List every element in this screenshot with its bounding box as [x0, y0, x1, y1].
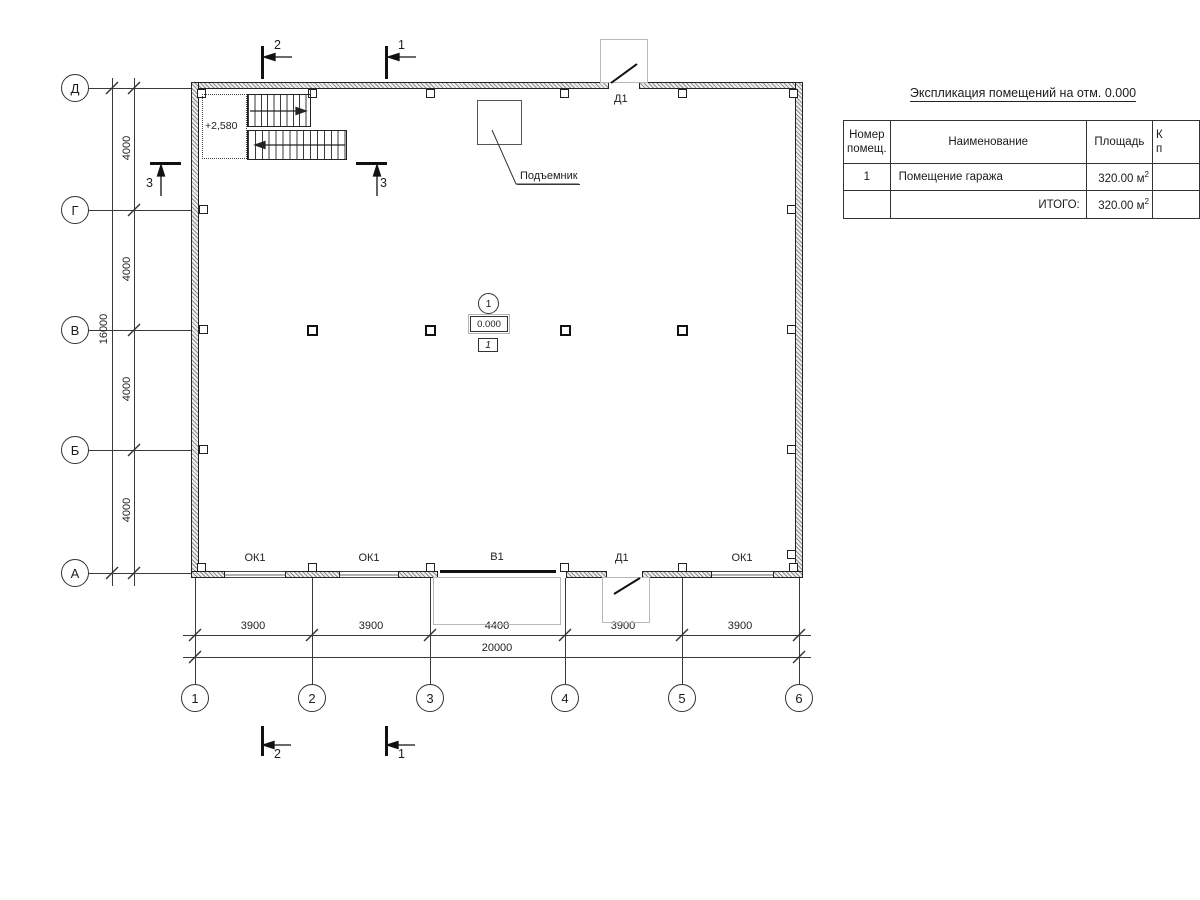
- wall-bottom-1: [191, 571, 225, 578]
- dim-label-3900-2: 3900: [341, 620, 401, 632]
- section-label-top-1: 1: [398, 38, 405, 52]
- axis-number: 6: [795, 691, 802, 706]
- section-flag-bottom-1: [385, 726, 388, 756]
- spec-data-row: 1 Помещение гаража 320.00 м2: [844, 164, 1200, 191]
- room-type-box: 1: [478, 338, 498, 352]
- spec-cell-cat: [1152, 191, 1199, 219]
- column: [197, 563, 206, 572]
- spec-title-text: Экспликация помещений на отм. 0.000: [910, 86, 1136, 102]
- column: [199, 325, 208, 334]
- porch-top-door: [600, 39, 648, 83]
- spec-header-cat: К п: [1152, 121, 1199, 164]
- room-level-box: 0.000: [470, 316, 508, 332]
- window-label-1: ОК1: [235, 552, 275, 564]
- spec-header-num: Номер помещ.: [844, 121, 891, 164]
- door-label-bottom: Д1: [615, 552, 629, 564]
- gate-v1-leaf: [440, 570, 556, 573]
- axis-letter: А: [71, 566, 80, 581]
- column: [789, 89, 798, 98]
- extension-line-2: [312, 578, 313, 684]
- axis-letter: Б: [71, 443, 80, 458]
- wall-bottom-5: [642, 571, 712, 578]
- section-label-bottom-2: 2: [274, 747, 281, 761]
- section-flag-top-2: [261, 46, 264, 79]
- dim-label-20000: 20000: [467, 642, 527, 654]
- interior-column: [307, 325, 318, 336]
- dim-label-3900-4: 3900: [710, 620, 770, 632]
- section-flag-side-left: [150, 162, 181, 165]
- room-level: 0.000: [477, 319, 501, 330]
- extension-line-6: [799, 578, 800, 684]
- interior-column: [425, 325, 436, 336]
- spec-cell-area: 320.00 м2: [1086, 164, 1152, 191]
- stair-level-label: +2,580: [205, 120, 237, 132]
- extension-line-1: [195, 578, 196, 684]
- section-flag-top-1: [385, 46, 388, 79]
- column: [678, 563, 687, 572]
- room-number-circle: 1: [478, 293, 499, 314]
- column: [560, 563, 569, 572]
- door-leaves: [611, 64, 640, 594]
- dim-line-left-segments: [134, 78, 135, 586]
- axis-line-d: [89, 88, 199, 89]
- lift-square: [477, 100, 522, 145]
- axis-letter: Г: [71, 203, 78, 218]
- spec-cell-name: Помещение гаража: [890, 164, 1086, 191]
- hdr-line: Номер: [847, 128, 887, 142]
- wall-bottom-3: [398, 571, 438, 578]
- axis-circle-left-a: А: [61, 559, 89, 587]
- spec-cell-total-label: ИТОГО:: [890, 191, 1086, 219]
- hdr-line: помещ.: [847, 142, 887, 156]
- hdr-line: п: [1156, 142, 1196, 156]
- spec-cell-num: 1: [844, 164, 891, 191]
- lift-label: Подъемник: [520, 170, 578, 182]
- wall-bottom-6: [773, 571, 803, 578]
- stair-wall-connector: [310, 89, 311, 94]
- column: [787, 550, 796, 559]
- dim-label-3900-1: 3900: [223, 620, 283, 632]
- column: [426, 563, 435, 572]
- axis-circle-bottom-5: 5: [668, 684, 696, 712]
- gate-label: В1: [480, 551, 514, 563]
- door-label-top: Д1: [614, 93, 628, 105]
- dim-label-4000-2: 4000: [121, 245, 133, 293]
- spec-cell-total-area: 320.00 м2: [1086, 191, 1152, 219]
- axis-circle-left-d: Д: [61, 74, 89, 102]
- axis-circle-bottom-3: 3: [416, 684, 444, 712]
- axis-letter: Д: [71, 81, 80, 96]
- floor-plan-drawing: 4000 4000 4000 4000 16000 Д Г В Б А 3900…: [0, 0, 1200, 900]
- dim-line-bottom-total: [183, 657, 811, 658]
- room-number: 1: [486, 298, 492, 310]
- dim-line-bottom-segments: [183, 635, 811, 636]
- spec-cell-cat: [1152, 164, 1199, 191]
- porch-bottom-door: [602, 577, 650, 623]
- column: [560, 89, 569, 98]
- window-label-3: ОК1: [722, 552, 762, 564]
- wall-left: [191, 82, 199, 578]
- lift-label-underline: [517, 184, 580, 185]
- spec-table-title: Экспликация помещений на отм. 0.000: [843, 86, 1200, 100]
- axis-line-a: [89, 573, 199, 574]
- wall-top-right: [639, 82, 803, 89]
- stair-flight-lower: [247, 130, 347, 160]
- window-ok1-2: [340, 571, 398, 578]
- axis-circle-bottom-2: 2: [298, 684, 326, 712]
- axis-line-g: [89, 210, 199, 211]
- section-flag-bottom-2: [261, 726, 264, 756]
- wall-bottom-2: [285, 571, 340, 578]
- axis-line-b: [89, 450, 199, 451]
- column: [678, 89, 687, 98]
- spec-total-row: ИТОГО: 320.00 м2: [844, 191, 1200, 219]
- dim-label-4000-3: 4000: [121, 365, 133, 413]
- spec-header-area: Площадь: [1086, 121, 1152, 164]
- column: [787, 205, 796, 214]
- axis-number: 1: [191, 691, 198, 706]
- interior-column: [677, 325, 688, 336]
- axis-circle-left-g: Г: [61, 196, 89, 224]
- extension-line-4: [565, 578, 566, 684]
- apron-gate: [433, 577, 561, 625]
- wall-right: [795, 82, 803, 578]
- extension-line-5: [682, 578, 683, 684]
- window-ok1-3: [712, 571, 773, 578]
- spec-header-name: Наименование: [890, 121, 1086, 164]
- hdr-line: К: [1156, 128, 1196, 142]
- section-label-side-right: 3: [380, 176, 387, 190]
- section-label-bottom-1: 1: [398, 747, 405, 761]
- spec-header-row: Номер помещ. Наименование Площадь К п: [844, 121, 1200, 164]
- spec-table: Номер помещ. Наименование Площадь К п 1 …: [843, 120, 1200, 219]
- axis-letter: В: [71, 323, 80, 338]
- window-ok1-1: [225, 571, 285, 578]
- room-type: 1: [485, 339, 491, 351]
- axis-circle-left-b: Б: [61, 436, 89, 464]
- area-value: 320.00 м: [1098, 200, 1144, 212]
- column: [787, 445, 796, 454]
- extension-line-3: [430, 578, 431, 684]
- axis-number: 2: [308, 691, 315, 706]
- dim-label-4000-1: 4000: [121, 124, 133, 172]
- interior-column: [560, 325, 571, 336]
- axis-circle-bottom-1: 1: [181, 684, 209, 712]
- dim-label-4000-4: 4000: [121, 486, 133, 534]
- axis-circle-bottom-6: 6: [785, 684, 813, 712]
- section-flag-side-right: [356, 162, 387, 165]
- wall-top-left: [191, 82, 609, 89]
- window-label-2: ОК1: [349, 552, 389, 564]
- column: [787, 325, 796, 334]
- area-value: 320.00 м: [1098, 172, 1144, 184]
- column: [789, 563, 798, 572]
- dim-label-16000: 16000: [98, 303, 110, 355]
- stair-flight-upper: [247, 94, 311, 127]
- dim-line-left-total: [112, 78, 113, 586]
- axis-circle-bottom-4: 4: [551, 684, 579, 712]
- axis-number: 3: [426, 691, 433, 706]
- section-label-side-left: 3: [146, 176, 153, 190]
- column: [308, 563, 317, 572]
- column: [426, 89, 435, 98]
- column: [199, 445, 208, 454]
- area-sup: 2: [1144, 170, 1148, 179]
- axis-number: 5: [678, 691, 685, 706]
- column: [199, 205, 208, 214]
- spec-cell-empty: [844, 191, 891, 219]
- wall-bottom-4: [566, 571, 607, 578]
- area-sup: 2: [1144, 197, 1148, 206]
- axis-number: 4: [561, 691, 568, 706]
- axis-circle-left-v: В: [61, 316, 89, 344]
- section-label-top-2: 2: [274, 38, 281, 52]
